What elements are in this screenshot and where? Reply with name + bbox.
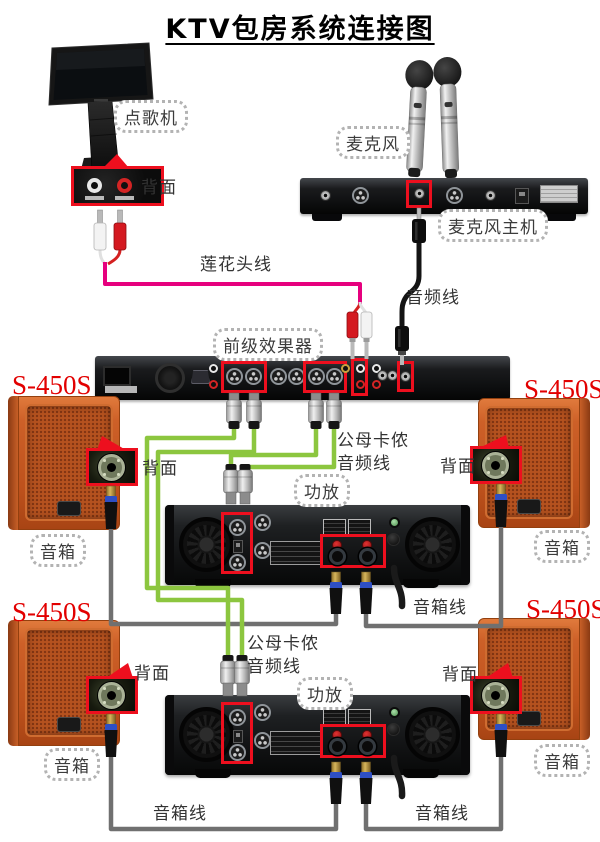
amp-link-xlr-b [254, 542, 271, 559]
amp-xlr-input-a [229, 519, 246, 536]
amp-foot [403, 579, 439, 588]
speaker-box-label-bottom-right: 音箱 [534, 744, 590, 777]
xlr-cable-label-line1: 公母卡侬 [247, 633, 319, 656]
xlr-cable-label-line2: 音频线 [247, 656, 319, 679]
rca-aux-red [372, 380, 381, 389]
speaker-logo-badge [57, 717, 81, 732]
receiver-foot-right [546, 214, 576, 221]
mic-input-highlight [397, 361, 414, 392]
serial-sticker [105, 386, 137, 393]
back-label-top-right: 背面 [440, 456, 476, 479]
rca-cable-label: 莲花头线 [200, 254, 272, 277]
amp-breaker-knob [387, 723, 400, 736]
amp-xlr-input-a [229, 709, 246, 726]
amp-fan-right [405, 707, 460, 762]
rca-plug-red [347, 312, 358, 359]
xlr-cable-label-2: 公母卡侬 音频线 [247, 633, 319, 679]
speakon-output-b [359, 738, 376, 755]
speaker-logo-badge [517, 499, 541, 514]
speaker-side [580, 618, 590, 740]
speaker-side [8, 396, 18, 530]
effects-xlr-mid-1 [270, 368, 287, 385]
speakon-panel-closeup-top-right [470, 446, 522, 484]
effects-rca-in-red [356, 380, 365, 389]
speaker-model-bottom-left: S-450S [12, 597, 92, 628]
xlr-plug [238, 464, 253, 504]
rca-plug-white [94, 210, 106, 250]
wireless-microphone-1 [400, 59, 434, 177]
amp-mode-switch [233, 540, 243, 553]
xlr-cable-label-1: 公母卡侬 音频线 [337, 430, 409, 476]
speakon-socket [98, 454, 125, 481]
effects-xlr-out-1 [226, 368, 243, 385]
speakon-panel-closeup-top-left [86, 448, 138, 486]
microphones-label: 麦克风 [336, 126, 410, 159]
jack-caption-left [85, 196, 104, 200]
power-amp-unit-1 [165, 505, 470, 585]
speaker-side [8, 620, 18, 746]
amp-power-button [389, 517, 400, 528]
amplifier-label-2: 功放 [297, 677, 353, 710]
speaker-cable-label-2: 音箱线 [153, 803, 207, 826]
rca-in-white [209, 364, 218, 373]
speakon-socket [482, 682, 509, 709]
speaker-model-top-right: S-450S [524, 374, 600, 405]
effects-xlr-out-4 [326, 368, 343, 385]
rack-ear [461, 505, 470, 585]
back-label-top-left: 背面 [142, 458, 178, 481]
speaker-cable-label-3: 音箱线 [415, 803, 469, 826]
amplifier-label-1: 功放 [294, 474, 350, 507]
rca-gold [341, 364, 350, 373]
rack-ear [461, 695, 470, 775]
speaker-box-label-bottom-left: 音箱 [44, 748, 100, 781]
receiver-info-plate [540, 185, 578, 203]
xlr-plug [224, 464, 239, 504]
amp-xlr-input-b [229, 744, 246, 761]
effects-processor-label: 前级效果器 [213, 328, 323, 361]
receiver-output-highlight [406, 180, 432, 208]
wireless-microphone-2 [433, 57, 465, 179]
speaker-cable-label-1: 音箱线 [413, 597, 467, 620]
effects-processor-unit [95, 356, 510, 400]
diagram-canvas: KTV包房系统连接图 点歌机 背面 麦克风 麦克风主机 莲花头线 音频线 前级效… [0, 0, 600, 842]
vga-connector [191, 370, 210, 384]
rca-plug-red [114, 210, 126, 250]
receiver-xlr-a [352, 187, 369, 204]
amp-input-highlight [221, 512, 253, 574]
receiver-xlr-b [446, 187, 463, 204]
amp-output-highlight [320, 534, 386, 568]
song-machine-back-label: 背面 [141, 177, 177, 200]
amp-breaker-knob [387, 533, 400, 546]
speakon-panel-closeup-bottom-left [86, 676, 138, 714]
speaker-logo-badge [57, 501, 81, 516]
power-inlet [103, 366, 131, 386]
speakon-output-a [329, 738, 346, 755]
rca-plug-white [361, 312, 372, 359]
caution-plate [270, 731, 322, 755]
xlr-cable-label-line2: 音频线 [337, 453, 409, 476]
speakon-socket [482, 452, 509, 479]
amp-link-xlr-a [254, 514, 271, 531]
caution-plate [270, 541, 322, 565]
amp-link-xlr-b [254, 732, 271, 749]
rack-ear [165, 505, 174, 585]
effects-mic-in-jack [400, 371, 411, 382]
amp-foot [403, 769, 439, 778]
jack-caption-right [115, 196, 134, 200]
speaker-model-bottom-right: S-450S [526, 594, 600, 625]
speakon-output-b [359, 548, 376, 565]
amp-foot [195, 769, 231, 778]
rca-out-white-jack [87, 178, 102, 193]
song-machine-label: 点歌机 [114, 100, 188, 133]
speakon-socket [98, 682, 125, 709]
amp-xlr-input-b [229, 554, 246, 571]
xlr-cable-c [231, 426, 316, 466]
amp-output-highlight [320, 724, 386, 758]
receiver-jack-1 [320, 190, 331, 201]
effects-xlr-out-2 [245, 368, 262, 385]
speaker-model-top-left: S-450S [12, 370, 92, 401]
receiver-mix-out-jack [414, 188, 425, 199]
xlr-cable-d [245, 426, 334, 467]
receiver-jack-2 [485, 190, 496, 201]
rca-out-red-jack [117, 178, 132, 193]
diagram-title: KTV包房系统连接图 [0, 7, 600, 46]
amp-mode-switch [233, 730, 243, 743]
receiver-foot-left [312, 214, 342, 221]
xlr-plug [221, 655, 236, 696]
effects-rca-in-white [356, 364, 365, 373]
audio-cable-label: 音频线 [406, 287, 460, 310]
amp-fan-right [405, 517, 460, 572]
rca-in-red [209, 380, 218, 389]
effects-xlr-out-3 [308, 368, 325, 385]
speaker-box-label-top-right: 音箱 [534, 530, 590, 563]
rca-input-highlight [351, 358, 368, 396]
amp-foot [195, 579, 231, 588]
mic-receiver-label: 麦克风主机 [438, 209, 548, 242]
back-label-bottom-left: 背面 [134, 663, 170, 686]
speaker-box-label-top-left: 音箱 [30, 534, 86, 567]
speakon-output-a [329, 548, 346, 565]
effects-fan [155, 363, 185, 393]
back-label-bottom-right: 背面 [442, 664, 478, 687]
receiver-power-switch [515, 188, 529, 204]
amp-input-highlight [221, 702, 253, 764]
amp-link-xlr-a [254, 704, 271, 721]
speaker-side [580, 398, 590, 528]
amp-power-button [389, 707, 400, 718]
mic-receiver-unit [300, 178, 588, 214]
xlr-cable-label-line1: 公母卡侬 [337, 430, 409, 453]
rack-ear [165, 695, 174, 775]
